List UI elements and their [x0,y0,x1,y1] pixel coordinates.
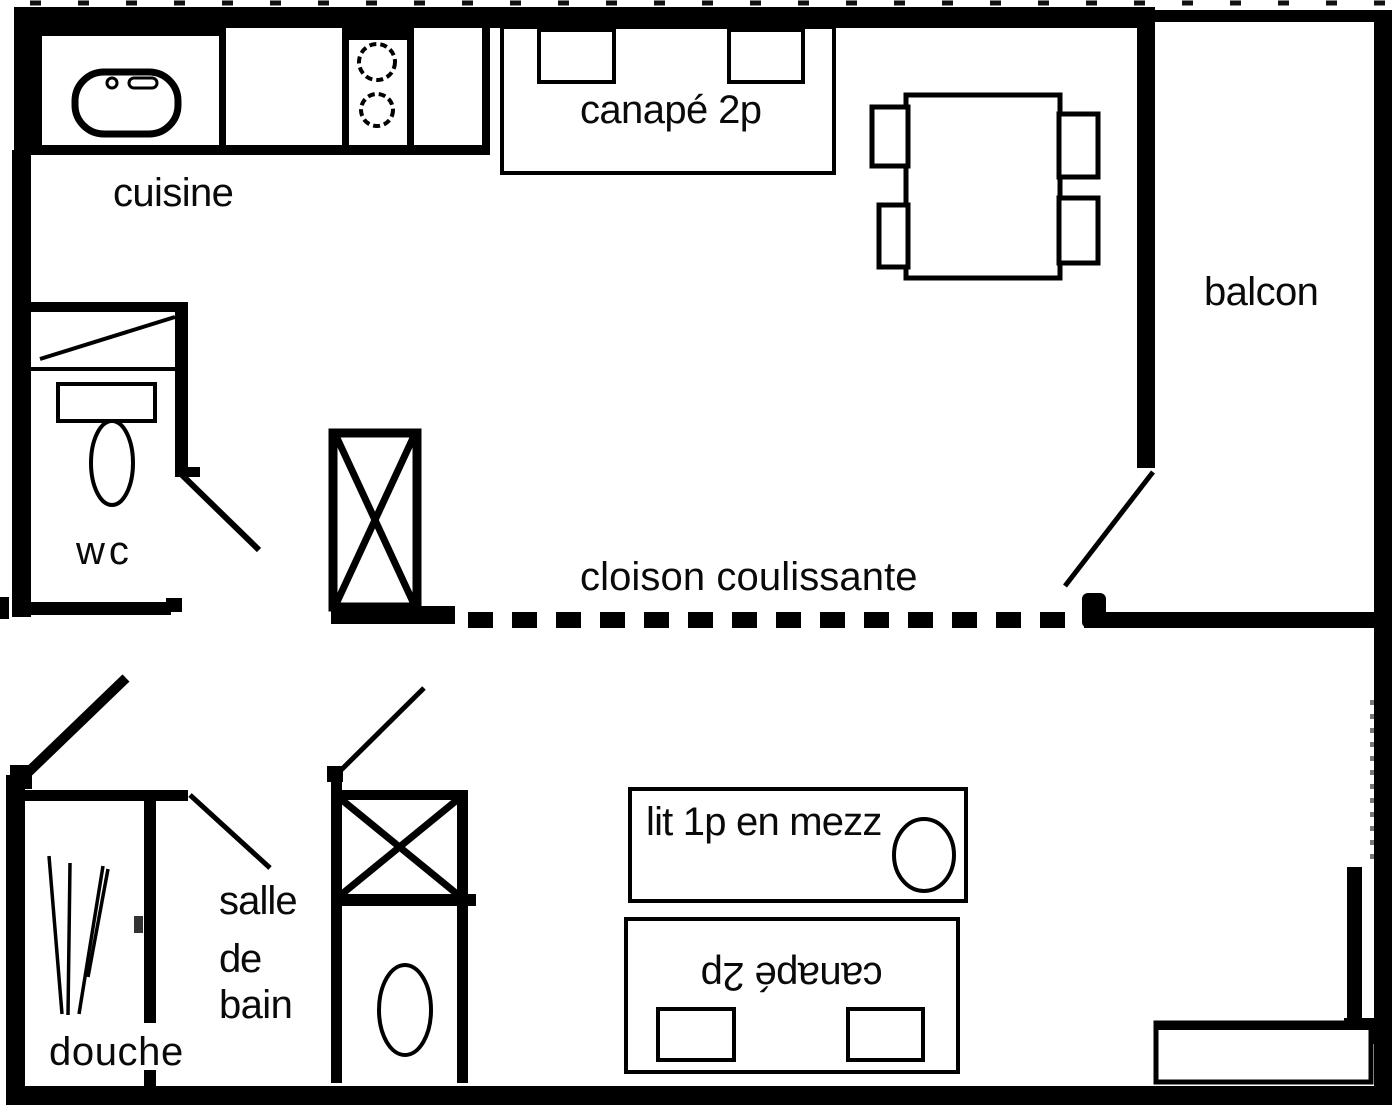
svg-text:wc: wc [75,529,133,573]
svg-text:bain: bain [219,983,292,1027]
svg-text:douche: douche [49,1030,184,1074]
svg-text:salle: salle [219,879,297,923]
svg-text:lit 1p en mezz: lit 1p en mezz [646,800,882,844]
svg-text:canapé 2p: canapé 2p [580,88,761,132]
svg-text:canapé 2p: canapé 2p [701,954,882,998]
svg-text:balcon: balcon [1204,270,1318,314]
svg-text:cloison coulissante: cloison coulissante [580,555,918,599]
svg-text:cuisine: cuisine [113,171,233,215]
svg-text:de: de [219,937,261,981]
